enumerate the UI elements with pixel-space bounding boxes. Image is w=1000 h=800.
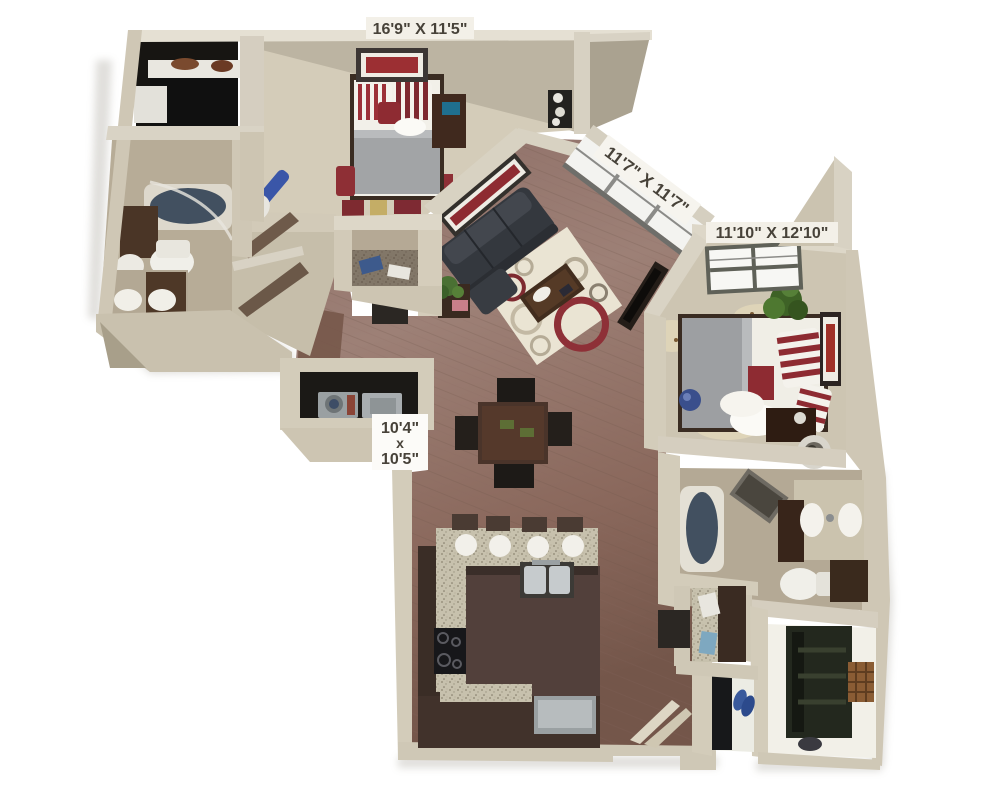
svg-text:x: x xyxy=(396,435,404,451)
svg-text:10'5": 10'5" xyxy=(381,451,419,468)
svg-text:11'10" X 12'10": 11'10" X 12'10" xyxy=(716,225,829,242)
svg-text:16'9" X 11'5": 16'9" X 11'5" xyxy=(373,21,468,38)
